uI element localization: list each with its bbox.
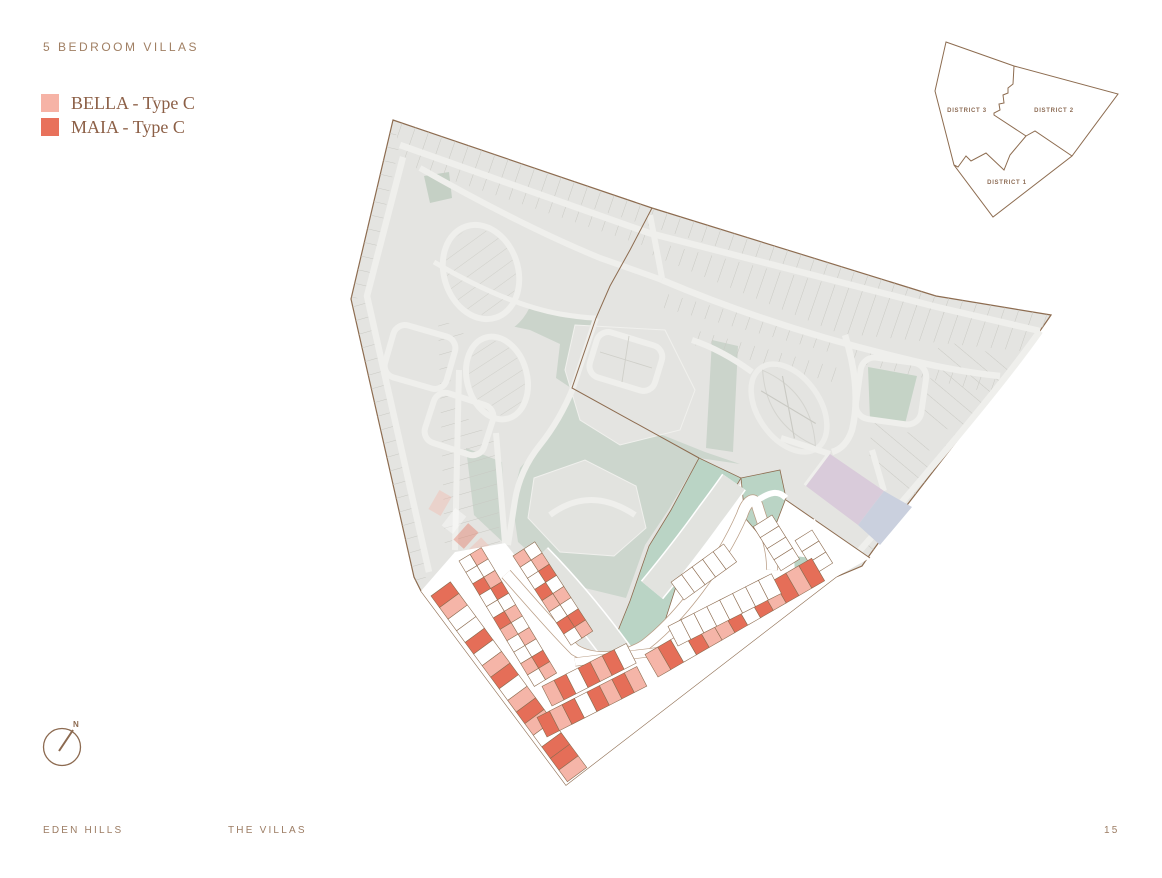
svg-text:DISTRICT 3: DISTRICT 3 bbox=[947, 108, 987, 114]
svg-text:N: N bbox=[73, 720, 79, 729]
svg-text:DISTRICT 2: DISTRICT 2 bbox=[1034, 108, 1074, 114]
svg-text:DISTRICT 1: DISTRICT 1 bbox=[987, 180, 1027, 186]
